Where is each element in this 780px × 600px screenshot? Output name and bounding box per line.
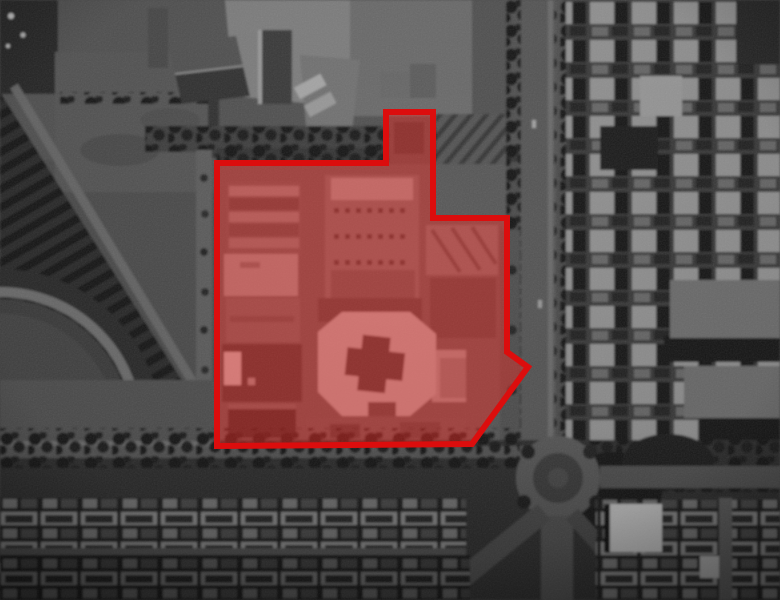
satellite-image: [0, 0, 780, 600]
satellite-figure: [0, 0, 780, 600]
